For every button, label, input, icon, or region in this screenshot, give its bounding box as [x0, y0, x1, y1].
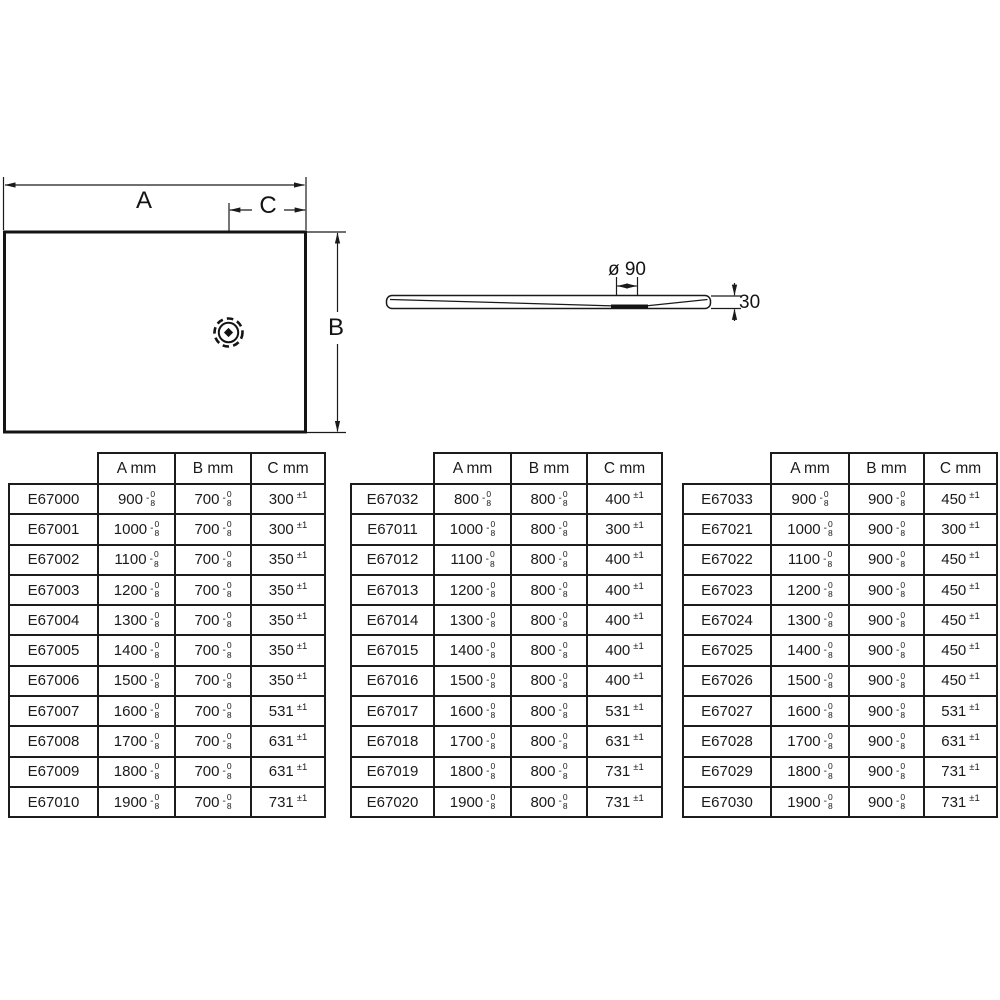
product-code-cell: E67006: [9, 666, 98, 696]
spec-row: E670171600-08800-08531±1: [351, 696, 662, 726]
product-code-cell: E67032: [351, 484, 434, 514]
a-dimension-cell: 1600-08: [771, 696, 849, 726]
a-dimension-cell: 1700-08: [98, 726, 175, 756]
a-dimension-cell: 1800-08: [98, 757, 175, 787]
c-dimension-cell: 531±1: [587, 696, 662, 726]
label-a: A: [136, 187, 152, 214]
product-code-cell: E67007: [9, 696, 98, 726]
c-dimension-cell: 450±1: [924, 635, 997, 665]
spec-row: E670191800-08800-08731±1: [351, 757, 662, 787]
b-dimension-cell: 700-08: [175, 757, 251, 787]
c-dimension-cell: 400±1: [587, 484, 662, 514]
spec-row: E670181700-08800-08631±1: [351, 726, 662, 756]
c-dimension-cell: 450±1: [924, 545, 997, 575]
b-dimension-cell: 900-08: [849, 605, 924, 635]
spec-row: E670081700-08700-08631±1: [9, 726, 325, 756]
product-code-cell: E67020: [351, 787, 434, 817]
b-dimension-cell: 900-08: [849, 787, 924, 817]
plan-view: A C B: [4, 177, 347, 433]
a-dimension-cell: 900-08: [771, 484, 849, 514]
spec-row: E670071600-08700-08531±1: [9, 696, 325, 726]
spec-row: E670151400-08800-08400±1: [351, 635, 662, 665]
a-dimension-cell: 1200-08: [434, 575, 511, 605]
b-dimension-cell: 700-08: [175, 514, 251, 544]
b-dimension-cell: 800-08: [511, 757, 587, 787]
a-dimension-cell: 1000-08: [434, 514, 511, 544]
b-dimension-cell: 900-08: [849, 757, 924, 787]
a-dimension-cell: 1300-08: [771, 605, 849, 635]
b-dimension-cell: 700-08: [175, 575, 251, 605]
spec-row: E670121100-08800-08400±1: [351, 545, 662, 575]
product-code-cell: E67009: [9, 757, 98, 787]
a-dimension-cell: 1900-08: [98, 787, 175, 817]
a-dimension-cell: 1100-08: [771, 545, 849, 575]
b-dimension-cell: 700-08: [175, 605, 251, 635]
product-code-cell: E67030: [683, 787, 771, 817]
b-dimension-cell: 800-08: [511, 575, 587, 605]
b-dimension-cell: 900-08: [849, 575, 924, 605]
c-dimension-cell: 631±1: [924, 726, 997, 756]
b-dimension-cell: 900-08: [849, 514, 924, 544]
product-code-cell: E67026: [683, 666, 771, 696]
spec-row: E670041300-08700-08350±1: [9, 605, 325, 635]
table-corner-cell: [9, 453, 98, 484]
header-row: A mmB mmC mm: [9, 453, 325, 484]
product-code-cell: E67002: [9, 545, 98, 575]
c-dimension-cell: 400±1: [587, 575, 662, 605]
product-code-cell: E67011: [351, 514, 434, 544]
c-dimension-cell: 450±1: [924, 484, 997, 514]
label-drain-diameter: ø 90: [608, 259, 646, 280]
a-dimension-cell: 1500-08: [434, 666, 511, 696]
a-dimension-cell: 900-08: [98, 484, 175, 514]
spec-row: E670281700-08900-08631±1: [683, 726, 997, 756]
table-corner-cell: [683, 453, 771, 484]
spec-row: E670291800-08900-08731±1: [683, 757, 997, 787]
technical-drawing: A C B: [0, 0, 1000, 460]
b-dimension-cell: 800-08: [511, 484, 587, 514]
spec-row: E670241300-08900-08450±1: [683, 605, 997, 635]
a-dimension-cell: 1100-08: [98, 545, 175, 575]
a-dimension-cell: 1000-08: [98, 514, 175, 544]
c-dimension-cell: 300±1: [587, 514, 662, 544]
a-dimension-cell: 1300-08: [98, 605, 175, 635]
column-header-a: A mm: [98, 453, 175, 484]
spec-row: E670021100-08700-08350±1: [9, 545, 325, 575]
product-code-cell: E67033: [683, 484, 771, 514]
a-dimension-cell: 1700-08: [434, 726, 511, 756]
spec-row: E670261500-08900-08450±1: [683, 666, 997, 696]
b-dimension-cell: 700-08: [175, 787, 251, 817]
spec-row: E670051400-08700-08350±1: [9, 635, 325, 665]
spec-row: E670301900-08900-08731±1: [683, 787, 997, 817]
product-code-cell: E67008: [9, 726, 98, 756]
c-dimension-cell: 731±1: [587, 757, 662, 787]
c-dimension-cell: 400±1: [587, 666, 662, 696]
product-code-cell: E67025: [683, 635, 771, 665]
c-dimension-cell: 450±1: [924, 605, 997, 635]
c-dimension-cell: 631±1: [251, 726, 325, 756]
product-code-cell: E67029: [683, 757, 771, 787]
b-dimension-cell: 800-08: [511, 514, 587, 544]
product-code-cell: E67001: [9, 514, 98, 544]
b-dimension-cell: 700-08: [175, 484, 251, 514]
product-code-cell: E67027: [683, 696, 771, 726]
column-header-c: C mm: [924, 453, 997, 484]
a-dimension-cell: 1800-08: [771, 757, 849, 787]
product-code-cell: E67003: [9, 575, 98, 605]
column-header-c: C mm: [251, 453, 325, 484]
b-dimension-cell: 900-08: [849, 484, 924, 514]
spec-row: E67033900-08900-08450±1: [683, 484, 997, 514]
spec-row: E670211000-08900-08300±1: [683, 514, 997, 544]
tray-outline: [5, 232, 306, 432]
spec-row: E670221100-08900-08450±1: [683, 545, 997, 575]
c-dimension-cell: 531±1: [924, 696, 997, 726]
c-dimension-cell: 450±1: [924, 575, 997, 605]
b-dimension-cell: 900-08: [849, 666, 924, 696]
product-code-cell: E67021: [683, 514, 771, 544]
drain-icon: [215, 319, 243, 347]
b-dimension-cell: 700-08: [175, 545, 251, 575]
c-dimension-cell: 350±1: [251, 666, 325, 696]
c-dimension-cell: 350±1: [251, 575, 325, 605]
b-dimension-cell: 700-08: [175, 666, 251, 696]
b-dimension-cell: 800-08: [511, 787, 587, 817]
c-dimension-cell: 350±1: [251, 635, 325, 665]
column-header-c: C mm: [587, 453, 662, 484]
product-code-cell: E67018: [351, 726, 434, 756]
spec-table-b800: A mmB mmC mm E67032800-08800-08400±1E670…: [350, 452, 663, 818]
c-dimension-cell: 400±1: [587, 635, 662, 665]
dimension-c: C: [229, 192, 305, 231]
dimension-b: B: [307, 232, 346, 433]
spec-row: E670131200-08800-08400±1: [351, 575, 662, 605]
product-code-cell: E67023: [683, 575, 771, 605]
b-dimension-cell: 800-08: [511, 635, 587, 665]
b-dimension-cell: 700-08: [175, 696, 251, 726]
c-dimension-cell: 731±1: [924, 757, 997, 787]
spec-row: E670161500-08800-08400±1: [351, 666, 662, 696]
header-row: A mmB mmC mm: [683, 453, 997, 484]
spec-row: E670271600-08900-08531±1: [683, 696, 997, 726]
a-dimension-cell: 1400-08: [434, 635, 511, 665]
spec-row: E670201900-08800-08731±1: [351, 787, 662, 817]
a-dimension-cell: 1900-08: [771, 787, 849, 817]
c-dimension-cell: 300±1: [924, 514, 997, 544]
b-dimension-cell: 900-08: [849, 545, 924, 575]
column-header-b: B mm: [175, 453, 251, 484]
b-dimension-cell: 800-08: [511, 605, 587, 635]
c-dimension-cell: 300±1: [251, 514, 325, 544]
product-code-cell: E67010: [9, 787, 98, 817]
b-dimension-cell: 800-08: [511, 696, 587, 726]
a-dimension-cell: 1400-08: [98, 635, 175, 665]
column-header-b: B mm: [849, 453, 924, 484]
spec-row: E670011000-08700-08300±1: [9, 514, 325, 544]
product-code-cell: E67000: [9, 484, 98, 514]
a-dimension-cell: 1500-08: [771, 666, 849, 696]
b-dimension-cell: 800-08: [511, 666, 587, 696]
a-dimension-cell: 1200-08: [98, 575, 175, 605]
b-dimension-cell: 900-08: [849, 635, 924, 665]
spec-table-b700: A mmB mmC mm E67000900-08700-08300±1E670…: [8, 452, 326, 818]
c-dimension-cell: 531±1: [251, 696, 325, 726]
c-dimension-cell: 631±1: [251, 757, 325, 787]
a-dimension-cell: 1200-08: [771, 575, 849, 605]
column-header-a: A mm: [434, 453, 511, 484]
spec-row: E670101900-08700-08731±1: [9, 787, 325, 817]
a-dimension-cell: 800-08: [434, 484, 511, 514]
c-dimension-cell: 631±1: [587, 726, 662, 756]
product-code-cell: E67015: [351, 635, 434, 665]
spec-row: E670111000-08800-08300±1: [351, 514, 662, 544]
a-dimension-cell: 1700-08: [771, 726, 849, 756]
dimension-thickness: 30: [711, 283, 760, 321]
spec-row: E67000900-08700-08300±1: [9, 484, 325, 514]
a-dimension-cell: 1000-08: [771, 514, 849, 544]
b-dimension-cell: 900-08: [849, 696, 924, 726]
c-dimension-cell: 350±1: [251, 605, 325, 635]
spec-row: E670251400-08900-08450±1: [683, 635, 997, 665]
table-corner-cell: [351, 453, 434, 484]
product-code-cell: E67004: [9, 605, 98, 635]
tray-profile-outline: [387, 296, 711, 309]
product-code-cell: E67022: [683, 545, 771, 575]
label-thickness: 30: [739, 292, 760, 313]
a-dimension-cell: 1100-08: [434, 545, 511, 575]
spec-row: E670091800-08700-08631±1: [9, 757, 325, 787]
a-dimension-cell: 1500-08: [98, 666, 175, 696]
c-dimension-cell: 350±1: [251, 545, 325, 575]
spec-row: E67032800-08800-08400±1: [351, 484, 662, 514]
column-header-b: B mm: [511, 453, 587, 484]
a-dimension-cell: 1400-08: [771, 635, 849, 665]
c-dimension-cell: 300±1: [251, 484, 325, 514]
b-dimension-cell: 900-08: [849, 726, 924, 756]
spec-row: E670141300-08800-08400±1: [351, 605, 662, 635]
side-view: ø 90 30: [387, 259, 761, 321]
c-dimension-cell: 400±1: [587, 605, 662, 635]
spec-row: E670231200-08900-08450±1: [683, 575, 997, 605]
b-dimension-cell: 700-08: [175, 635, 251, 665]
product-code-cell: E67012: [351, 545, 434, 575]
c-dimension-cell: 731±1: [924, 787, 997, 817]
dimension-drain-diameter: ø 90: [608, 259, 646, 295]
header-row: A mmB mmC mm: [351, 453, 662, 484]
c-dimension-cell: 450±1: [924, 666, 997, 696]
product-code-cell: E67014: [351, 605, 434, 635]
product-code-cell: E67017: [351, 696, 434, 726]
a-dimension-cell: 1600-08: [434, 696, 511, 726]
a-dimension-cell: 1800-08: [434, 757, 511, 787]
c-dimension-cell: 731±1: [251, 787, 325, 817]
a-dimension-cell: 1300-08: [434, 605, 511, 635]
datasheet-page: { "page": { "background": "#ffffff", "in…: [0, 0, 1000, 1000]
b-dimension-cell: 800-08: [511, 726, 587, 756]
c-dimension-cell: 731±1: [587, 787, 662, 817]
product-code-cell: E67016: [351, 666, 434, 696]
product-code-cell: E67028: [683, 726, 771, 756]
product-code-cell: E67019: [351, 757, 434, 787]
spec-row: E670031200-08700-08350±1: [9, 575, 325, 605]
a-dimension-cell: 1900-08: [434, 787, 511, 817]
c-dimension-cell: 400±1: [587, 545, 662, 575]
column-header-a: A mm: [771, 453, 849, 484]
b-dimension-cell: 800-08: [511, 545, 587, 575]
spec-row: E670061500-08700-08350±1: [9, 666, 325, 696]
product-code-cell: E67005: [9, 635, 98, 665]
spec-table-b900: A mmB mmC mm E67033900-08900-08450±1E670…: [682, 452, 998, 818]
product-code-cell: E67013: [351, 575, 434, 605]
product-code-cell: E67024: [683, 605, 771, 635]
label-b: B: [328, 314, 344, 341]
label-c: C: [259, 192, 276, 219]
a-dimension-cell: 1600-08: [98, 696, 175, 726]
b-dimension-cell: 700-08: [175, 726, 251, 756]
